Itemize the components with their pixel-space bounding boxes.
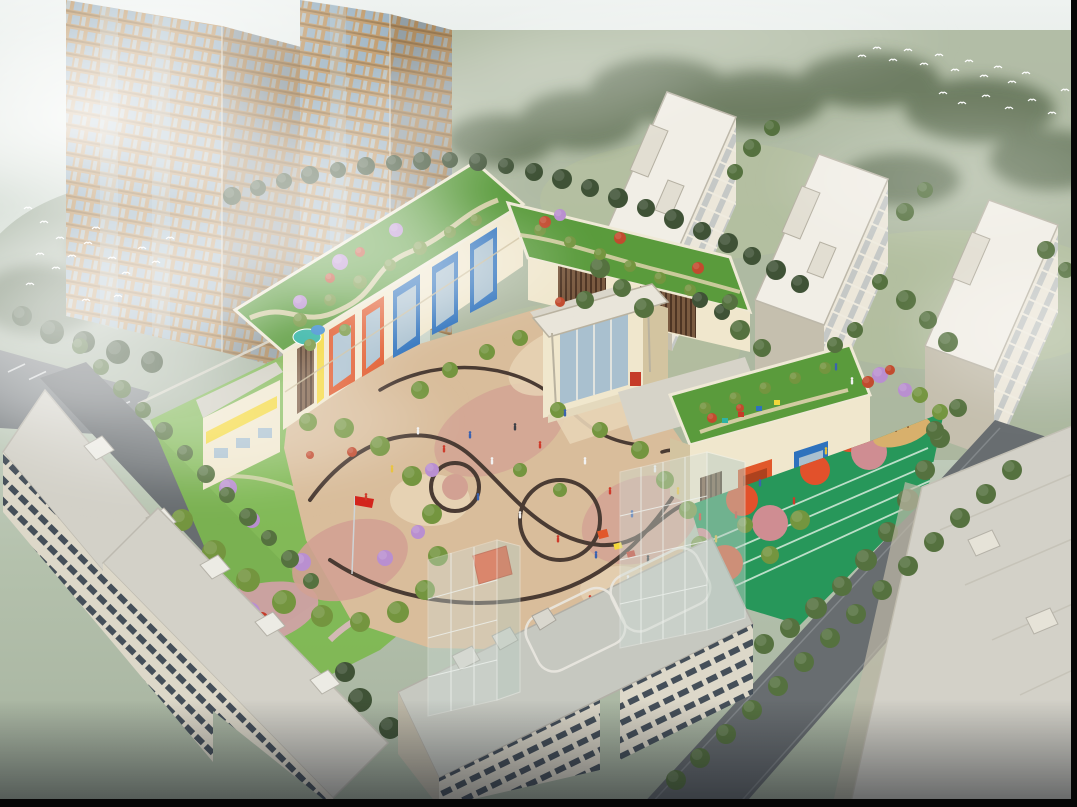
person [469, 434, 471, 439]
person [835, 366, 837, 371]
glass-building-2 [428, 540, 520, 716]
kindergarten-campus-rendering [0, 0, 1077, 807]
person [564, 412, 566, 417]
person [825, 450, 827, 455]
person [595, 554, 597, 559]
person [584, 460, 586, 465]
right-frame-bar [1071, 0, 1077, 807]
bottom-shade [0, 700, 1077, 799]
person [609, 490, 611, 495]
person [851, 380, 853, 385]
person [491, 460, 493, 465]
person [557, 538, 559, 543]
person [759, 482, 761, 487]
person [365, 496, 367, 501]
person [539, 444, 541, 449]
person [477, 496, 479, 501]
bottom-frame-bar [0, 799, 1077, 807]
aerial-rendering-stage [0, 0, 1077, 807]
glass-building-1 [620, 452, 745, 648]
person [514, 426, 516, 431]
person [793, 500, 795, 505]
person [519, 514, 521, 519]
entrance-sign [630, 372, 641, 386]
